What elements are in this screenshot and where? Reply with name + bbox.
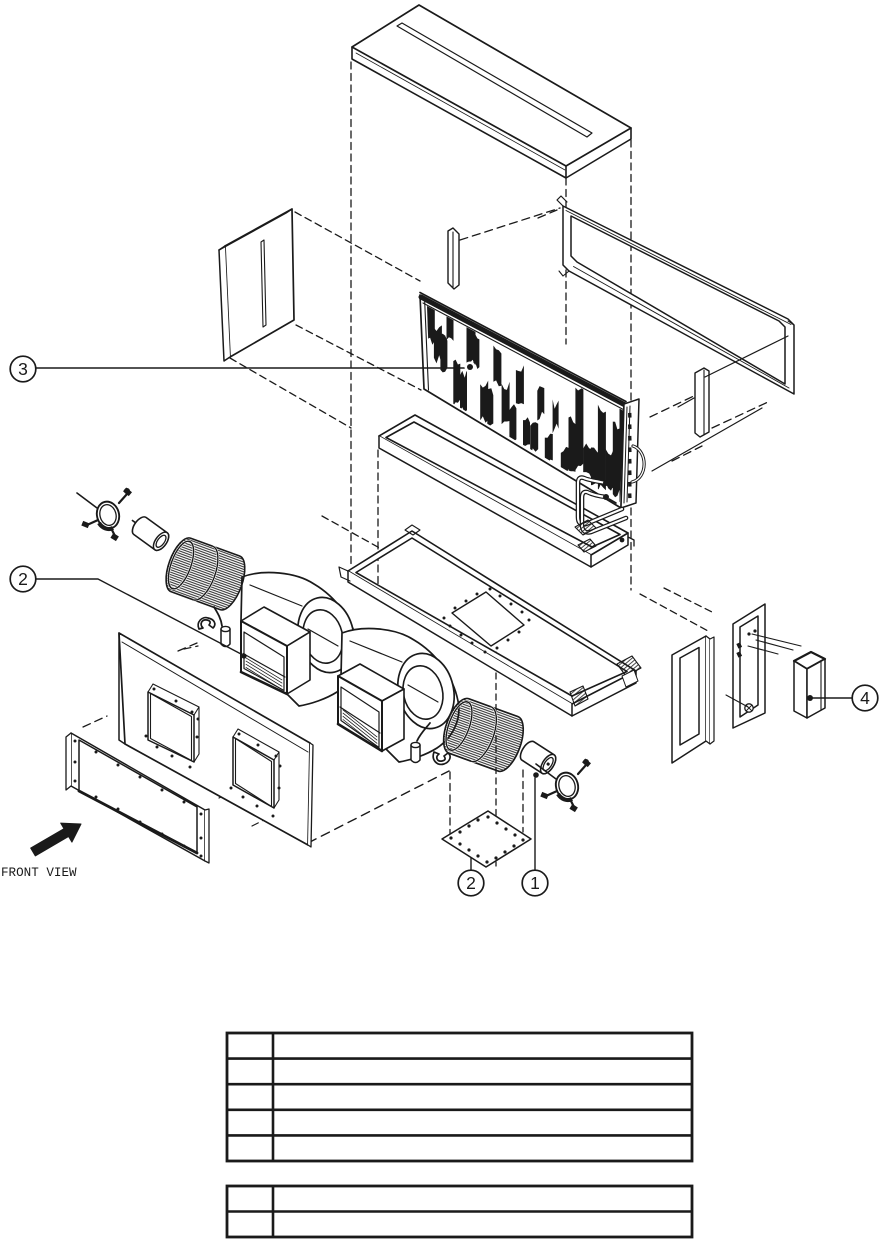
svg-text:1: 1 xyxy=(530,873,540,893)
svg-text:3: 3 xyxy=(18,359,28,379)
svg-text:2: 2 xyxy=(18,569,28,589)
svg-text:4: 4 xyxy=(860,688,870,708)
svg-text:FRONT VIEW: FRONT VIEW xyxy=(1,866,77,880)
svg-text:2: 2 xyxy=(466,873,476,893)
